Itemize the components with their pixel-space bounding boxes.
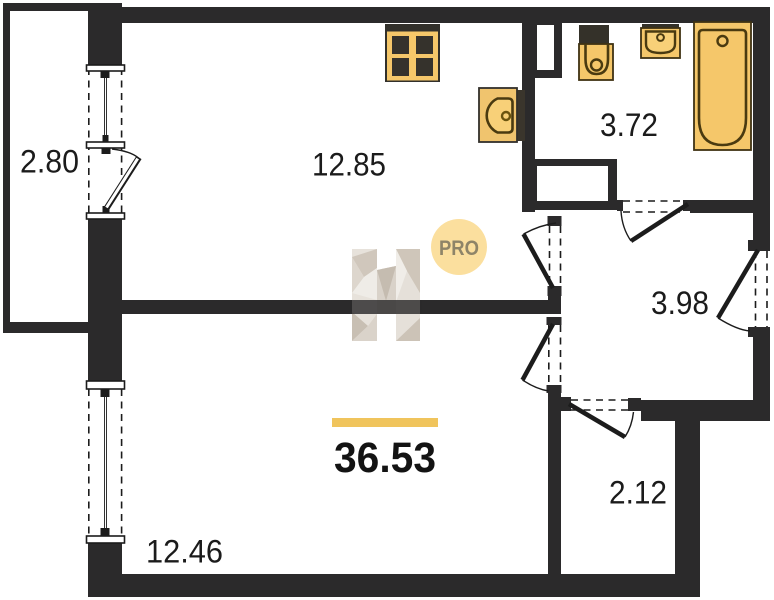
svg-text:2.80: 2.80 (20, 144, 79, 180)
svg-text:2.12: 2.12 (609, 475, 667, 511)
svg-text:12.85: 12.85 (312, 147, 386, 183)
svg-text:3.98: 3.98 (651, 285, 709, 321)
svg-text:36.53: 36.53 (334, 434, 436, 482)
svg-text:3.72: 3.72 (600, 107, 658, 143)
svg-text:12.46: 12.46 (146, 534, 223, 570)
svg-text:PRO: PRO (439, 237, 479, 260)
